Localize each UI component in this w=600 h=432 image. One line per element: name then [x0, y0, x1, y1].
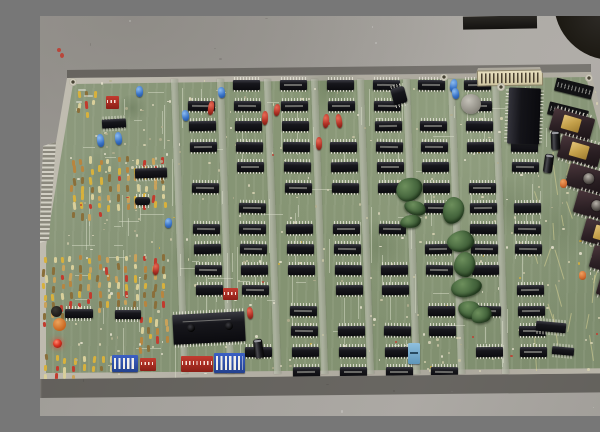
ic-marking [521, 289, 539, 291]
solder-joint [428, 341, 430, 344]
copper-trace [298, 205, 299, 217]
resistor [62, 284, 65, 289]
copper-trace-yellow [586, 314, 590, 329]
solder-joint [252, 192, 255, 194]
solder-joint [373, 324, 375, 326]
resistor [154, 301, 157, 309]
ic-marking [192, 104, 210, 106]
solder-joint [514, 216, 516, 219]
solder-joint [110, 333, 112, 336]
solder-joint [413, 276, 415, 278]
resistor [164, 202, 167, 208]
capacitor-blue [96, 134, 105, 148]
logic-ic-chip [237, 162, 264, 172]
resistor [53, 277, 56, 283]
solder-joint [152, 346, 154, 347]
logic-ic-chip [194, 244, 221, 254]
solder-joint [313, 280, 316, 282]
copper-trace [208, 278, 234, 279]
logic-ic-chip [283, 141, 310, 151]
solder-joint [204, 373, 207, 374]
solder-joint [92, 235, 94, 237]
resistor [152, 291, 155, 298]
resistor-network-pack [181, 356, 213, 372]
solder-joint [134, 230, 136, 233]
logic-ic-chip [420, 121, 447, 131]
resistor [144, 266, 147, 273]
logic-ic-chip [471, 244, 498, 254]
logic-ic-chip [190, 141, 217, 151]
logic-ic-chip [376, 141, 403, 151]
copper-trace [119, 221, 140, 222]
logic-ic-chip [189, 121, 216, 131]
copper-trace [309, 189, 332, 190]
resistor [87, 284, 90, 291]
solder-joint [538, 175, 540, 178]
solder-joint [230, 127, 231, 129]
copper-trace-yellow [589, 335, 594, 361]
solder-joint [208, 162, 211, 164]
solder-joint [315, 205, 316, 207]
resistor [51, 286, 54, 293]
solder-joint [596, 333, 598, 336]
resistor [162, 283, 165, 289]
crystal-disc [461, 94, 481, 114]
resistor [88, 258, 91, 264]
resistor [99, 264, 102, 270]
capacitor-red [322, 114, 329, 129]
solder-joint [424, 361, 426, 363]
logic-ic-chip [102, 118, 126, 128]
copper-trace [182, 88, 183, 127]
logic-ic-chip [236, 141, 263, 151]
logic-ic-chip [135, 167, 167, 178]
resistor [126, 167, 129, 173]
capacitor-blue [136, 86, 143, 97]
resistor [108, 174, 111, 182]
resistor [138, 347, 141, 354]
copper-trace [415, 274, 416, 313]
solder-joint [464, 159, 466, 161]
solder-joint [77, 178, 80, 180]
solder-joint [432, 233, 435, 235]
resistor [98, 255, 101, 261]
capacitor-blue [217, 87, 225, 98]
logic-ic-chip [290, 305, 317, 315]
solder-joint [159, 247, 161, 249]
logic-ic-chip [293, 367, 320, 377]
solder-joint [417, 314, 419, 316]
solder-joint [585, 339, 587, 341]
resistor [96, 274, 99, 281]
resistor [69, 281, 72, 287]
solder-joint [105, 171, 107, 173]
resistor [153, 184, 156, 190]
copper-trace [329, 239, 330, 273]
solder-joint [479, 370, 481, 372]
solder-joint [407, 304, 409, 307]
solder-joint [519, 277, 521, 279]
solder-joint [427, 368, 429, 370]
logic-ic-chip [472, 264, 499, 274]
ic-marking [284, 84, 302, 86]
resistor [100, 366, 103, 371]
copper-trace [485, 327, 486, 344]
silkscreen-mark [84, 95, 93, 97]
electrolytic-capacitor [551, 131, 561, 150]
solder-joint [159, 138, 162, 141]
solder-joint [590, 272, 592, 275]
logic-ic-chip [280, 80, 307, 90]
logic-ic-chip [336, 285, 363, 295]
resistor [141, 327, 144, 334]
electrolytic-capacitor [253, 339, 264, 359]
capacitor-red [152, 263, 159, 275]
copper-trace [103, 308, 104, 324]
copper-trace [433, 136, 454, 137]
capacitor-red [207, 101, 215, 116]
solder-joint [84, 202, 86, 204]
electrolytic-capacitor [543, 153, 555, 173]
logic-ic-chip [339, 346, 366, 356]
logic-ic-chip [239, 223, 266, 233]
solder-joint [435, 258, 437, 260]
ic-marking [242, 207, 260, 209]
ic-marking [338, 248, 356, 250]
logic-ic-chip [382, 285, 409, 295]
solder-joint [131, 166, 134, 169]
logic-ic-chip [513, 203, 540, 213]
copper-trace [140, 214, 164, 215]
resistor [117, 263, 120, 270]
logic-ic-chip [514, 223, 541, 233]
logic-ic-chip [520, 346, 547, 356]
ic-marking [519, 248, 537, 250]
eprom-label [560, 115, 582, 134]
logic-ic-chip [242, 285, 269, 295]
resistor [84, 101, 87, 109]
ic-marking [472, 186, 490, 188]
ic-marking [435, 371, 453, 373]
resistor [80, 166, 83, 172]
ic-marking [475, 248, 493, 250]
resistor [100, 160, 103, 165]
copper-trace [222, 191, 223, 204]
solder-joint [373, 318, 375, 321]
resistor-network-pack [223, 288, 238, 300]
copper-trace [292, 276, 293, 326]
solder-joint [149, 138, 151, 141]
resistor [148, 334, 151, 339]
ic-marking [246, 289, 264, 291]
capacitor-red [335, 114, 343, 128]
capacitor-orange [560, 179, 568, 188]
solder-joint [161, 126, 162, 128]
copper-trace [507, 309, 508, 334]
ic-marking [195, 186, 213, 188]
copper-trace [232, 253, 233, 271]
logic-ic-chip [234, 100, 261, 110]
ic-marking [344, 371, 362, 373]
eprom-quartz-window [590, 199, 600, 212]
solder-joint [436, 338, 439, 341]
copper-trace [454, 106, 455, 119]
resistor [144, 274, 147, 280]
ic-marking [390, 371, 408, 373]
resistor [162, 300, 165, 307]
solder-joint [289, 359, 292, 361]
resistor [56, 366, 59, 371]
capacitor-blue [451, 88, 460, 100]
resistor [68, 256, 71, 262]
solder-joint [413, 88, 415, 90]
solder-joint [596, 102, 599, 105]
resistor [134, 254, 137, 262]
resistor [135, 158, 138, 164]
copper-trace [237, 247, 238, 292]
logic-ic-chip [284, 162, 311, 172]
pack-pins [224, 292, 238, 295]
logic-ic-chip [192, 182, 219, 192]
resistor [60, 257, 63, 264]
ic-marking [243, 227, 261, 229]
resistor [77, 91, 80, 99]
solder-joint [70, 157, 72, 159]
solder-joint [290, 217, 292, 220]
copper-trace [122, 195, 123, 227]
ic-marking [524, 350, 542, 352]
solder-joint [75, 323, 77, 325]
logic-ic-chip [334, 244, 361, 254]
logic-ic-chip [422, 162, 449, 172]
resistor [161, 291, 164, 298]
solder-joint [272, 154, 274, 156]
capacitor-red [273, 104, 280, 117]
logic-ic-chip [338, 326, 365, 336]
ic-marking [380, 145, 398, 147]
solder-joint [129, 255, 132, 257]
solder-joint [112, 152, 115, 154]
resistor [166, 326, 169, 332]
resistor [162, 194, 165, 199]
solder-joint [510, 355, 512, 357]
resistor [56, 355, 59, 361]
copper-trace [114, 245, 123, 246]
resistor-network-pack [106, 96, 119, 109]
solder-joint [497, 162, 499, 164]
solder-joint [67, 242, 69, 245]
resistor [156, 336, 159, 344]
resistor [44, 295, 47, 301]
copper-trace [114, 226, 121, 227]
eprom-quartz-window [582, 172, 595, 185]
solder-joint [143, 129, 145, 131]
logic-ic-chip [333, 223, 360, 233]
logic-ic-chip [115, 310, 141, 319]
logic-ic-chip [428, 305, 455, 315]
copper-trace [134, 120, 142, 121]
ic-marking [285, 104, 303, 106]
logic-ic-chip [512, 162, 539, 172]
solder-joint [281, 231, 284, 233]
dip-switch-block [112, 355, 138, 372]
logic-ic-chip [470, 223, 497, 233]
ic-marking [194, 145, 212, 147]
solder-joint [364, 127, 367, 129]
copper-trace [139, 277, 140, 332]
resistor [117, 194, 120, 202]
solder-joint [370, 315, 372, 317]
copper-trace [361, 107, 362, 125]
socket-holes [557, 82, 591, 95]
resistor [88, 214, 91, 221]
resistor [83, 363, 86, 371]
solder-joint [161, 353, 163, 355]
logic-ic-chip [65, 309, 93, 318]
resistor [55, 372, 58, 379]
resistor [165, 319, 168, 326]
solder-joint [248, 184, 250, 187]
resistor [72, 178, 75, 186]
eprom-label [592, 225, 600, 244]
solder-joint [296, 197, 298, 199]
solder-joint [90, 249, 93, 251]
solder-joint [178, 163, 180, 166]
resistor [136, 294, 139, 302]
resistor [81, 193, 84, 200]
solder-joint [162, 341, 164, 343]
logic-ic-chip [340, 367, 367, 377]
solder-joint [101, 82, 103, 85]
resistor [79, 265, 82, 273]
solder-joint [226, 136, 228, 138]
solder-joint [99, 343, 101, 346]
solder-joint [117, 350, 120, 352]
resistor [146, 345, 149, 353]
ic-marking [297, 371, 315, 373]
resistor-network-pack [140, 358, 156, 371]
capacitor-orange [579, 271, 586, 280]
capacitor-blue [165, 218, 173, 229]
capacitor-red [262, 111, 268, 125]
solder-joint [578, 262, 581, 265]
resistor [89, 156, 92, 164]
resistor [51, 294, 54, 301]
cpu-chip [172, 311, 245, 345]
logic-ic-chip [288, 264, 315, 274]
solder-joint [378, 212, 380, 215]
solder-joint [431, 178, 433, 180]
disc-capacitor [51, 306, 62, 317]
resistor [126, 156, 129, 162]
logic-ic-chip [418, 80, 445, 90]
copper-trace [269, 199, 270, 253]
top-edge-connector [477, 69, 543, 86]
resistor [43, 313, 46, 320]
solder-joint [538, 186, 541, 188]
resistor [60, 275, 63, 281]
resistor [127, 204, 130, 211]
solder-joint [441, 355, 443, 358]
resistor [136, 184, 139, 192]
resistor [143, 292, 146, 298]
solder-joint [280, 365, 283, 367]
copper-trace [267, 300, 275, 301]
logic-ic-chip [287, 244, 314, 254]
copper-trace [546, 128, 547, 148]
resistor [89, 267, 92, 273]
resistor [72, 366, 75, 372]
logic-ic-chip [518, 305, 545, 315]
logic-ic-chip [238, 203, 265, 213]
copper-trace [148, 92, 164, 93]
solder-joint [287, 319, 290, 322]
solder-joint [100, 328, 102, 330]
logic-ic-chip [467, 141, 494, 151]
ic-marking [295, 330, 313, 332]
logic-ic-chip [331, 162, 358, 172]
solder-joint [551, 246, 554, 249]
resistor [63, 357, 66, 363]
pack-pins [107, 100, 119, 103]
resistor [43, 322, 46, 328]
solder-joint [106, 219, 108, 221]
solder-joint [124, 143, 126, 145]
solder-joint [448, 352, 450, 354]
cpu-chip-vertical [507, 87, 541, 144]
resistor [81, 213, 84, 221]
logic-ic-chip [384, 326, 411, 336]
logic-ic-chip [196, 285, 223, 295]
solder-joint [230, 111, 231, 114]
resistor [98, 308, 101, 313]
solder-joint [136, 234, 138, 237]
copper-trace [72, 245, 95, 246]
solder-joint [416, 128, 418, 130]
resistor [86, 111, 89, 117]
logic-ic-chip [292, 346, 319, 356]
copper-trace [83, 147, 95, 148]
pcb-photo [40, 16, 600, 416]
disc-capacitor [53, 318, 66, 331]
logic-ic-chip [332, 182, 359, 192]
resistor [92, 100, 95, 105]
resistor [98, 290, 101, 297]
solder-joint [370, 277, 372, 279]
solder-joint [352, 136, 355, 138]
solder-joint [460, 124, 462, 126]
resistor [92, 356, 95, 363]
solder-joint [558, 280, 560, 283]
resistor [117, 176, 120, 181]
resistor [42, 283, 45, 289]
resistor [81, 177, 84, 184]
resistor [156, 328, 159, 335]
logic-ic-chip [426, 264, 453, 274]
resistor [45, 275, 48, 283]
solder-joint [406, 316, 408, 318]
resistor [166, 336, 169, 343]
solder-joint [104, 223, 107, 225]
logic-ic-chip [429, 326, 456, 336]
solder-joint [138, 218, 140, 220]
resistor [78, 291, 81, 298]
solder-joint [68, 235, 71, 237]
resistor [98, 282, 101, 288]
logic-ic-chip [377, 162, 404, 172]
solder-joint [458, 359, 461, 361]
logic-ic-chip [423, 182, 450, 192]
